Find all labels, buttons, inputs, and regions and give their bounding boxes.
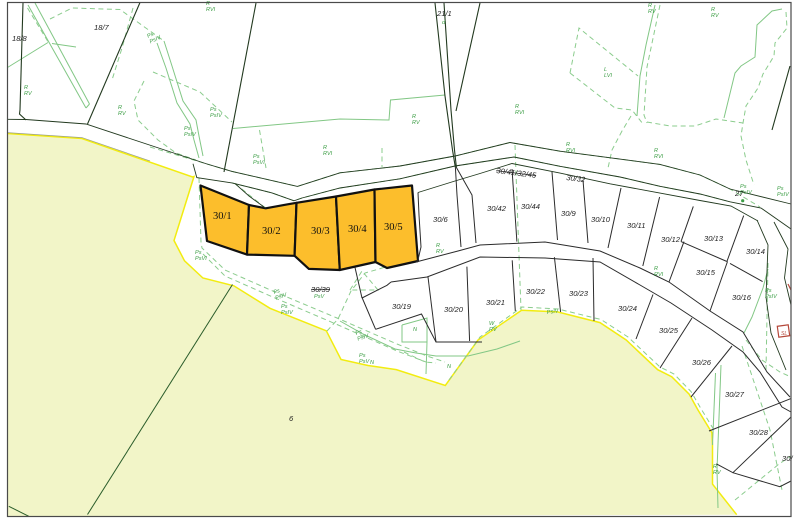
svg-text:30/19: 30/19 [392, 302, 412, 311]
svg-text:30/13: 30/13 [704, 234, 724, 243]
svg-text:30/11: 30/11 [627, 221, 645, 230]
svg-text:30/20: 30/20 [444, 305, 464, 314]
svg-text:30/2: 30/2 [262, 226, 281, 237]
svg-text:30/27: 30/27 [725, 390, 745, 399]
svg-text:30/16: 30/16 [732, 293, 752, 302]
svg-text:18/8: 18/8 [12, 34, 28, 43]
svg-text:30/5: 30/5 [384, 222, 403, 233]
svg-text:30/22: 30/22 [526, 287, 546, 296]
svg-text:30/6: 30/6 [433, 215, 449, 224]
svg-text:30/10: 30/10 [591, 215, 611, 224]
svg-text:21/1: 21/1 [436, 9, 452, 18]
svg-text:30/26: 30/26 [692, 358, 712, 367]
svg-text:30/28: 30/28 [749, 428, 769, 437]
svg-text:30/42: 30/42 [487, 204, 507, 213]
svg-text:30/25: 30/25 [659, 326, 679, 335]
svg-text:SL: SL [781, 331, 787, 337]
svg-text:30/44: 30/44 [521, 202, 540, 211]
svg-text:30/: 30/ [782, 454, 793, 463]
svg-text:30/14: 30/14 [746, 247, 765, 256]
svg-text:30/1: 30/1 [213, 211, 232, 222]
svg-text:18/7: 18/7 [94, 23, 110, 32]
svg-text:30/21: 30/21 [486, 298, 505, 307]
svg-text:30/4: 30/4 [348, 224, 367, 235]
svg-text:30/39: 30/39 [311, 285, 331, 294]
svg-text:30/24: 30/24 [618, 304, 637, 313]
svg-text:30/15: 30/15 [696, 268, 716, 277]
svg-text:PsV: PsV [314, 294, 326, 300]
svg-text:30/9: 30/9 [561, 209, 577, 218]
svg-text:30/23: 30/23 [569, 289, 589, 298]
svg-text:30/3: 30/3 [311, 226, 330, 237]
svg-text:30/12: 30/12 [661, 235, 681, 244]
